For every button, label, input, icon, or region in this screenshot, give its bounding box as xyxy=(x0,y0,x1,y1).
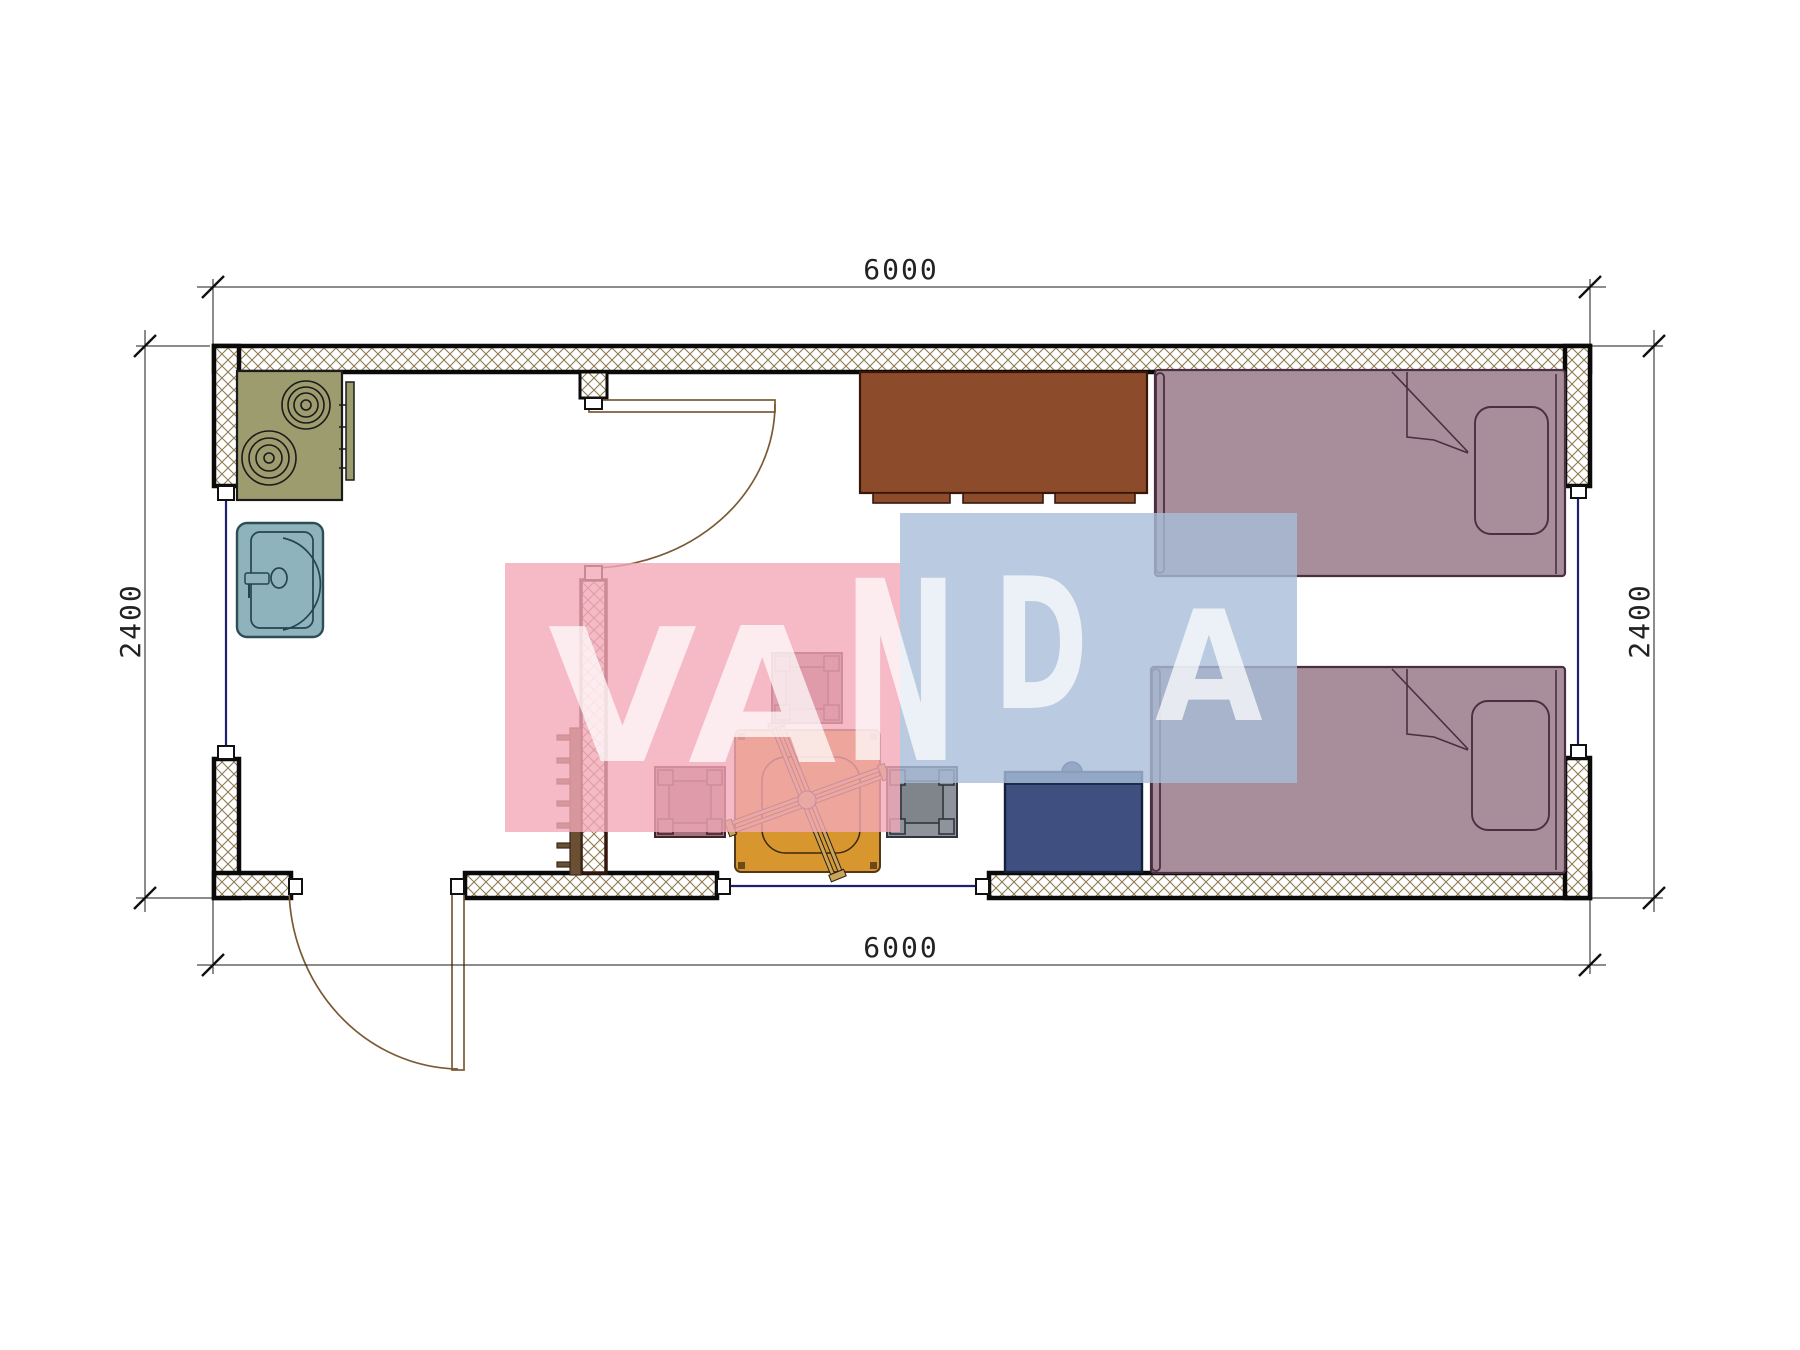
door-swing-entrance xyxy=(289,886,458,1069)
watermark-letter-a1: A xyxy=(688,588,836,807)
cabinet-group xyxy=(860,372,1147,503)
door-leaf-entrance xyxy=(452,884,464,1070)
cabinet-symbol xyxy=(860,372,1147,493)
kitchen-stove xyxy=(237,371,354,500)
wall-door-stub xyxy=(580,372,607,398)
kitchen-sink xyxy=(237,523,323,637)
wall-right-lower xyxy=(1565,758,1590,898)
wall-bottom-mid xyxy=(465,873,717,898)
floor-plan-drawing: 6000 6000 2400 2400 V A N D A xyxy=(0,0,1800,1350)
floor-plan-page: 6000 6000 2400 2400 V A N D A xyxy=(0,0,1800,1350)
watermark-letter-a2: A xyxy=(1155,579,1263,757)
cabinet-feet xyxy=(873,493,1135,503)
dim-label-right: 2400 xyxy=(1623,583,1656,658)
wall-right-upper xyxy=(1565,346,1590,486)
door-swing-interior xyxy=(590,404,775,568)
dim-label-left: 2400 xyxy=(114,583,147,658)
wall-left-upper xyxy=(214,346,239,486)
watermark-letter-n: N xyxy=(843,528,958,819)
watermark-letter-v: V xyxy=(548,589,697,805)
wall-bottom-left-arm xyxy=(214,873,291,898)
wall-bottom-right xyxy=(989,873,1590,898)
watermark-letter-d: D xyxy=(993,539,1088,751)
door-leaf-interior xyxy=(589,400,775,412)
stove-side-rail xyxy=(346,382,354,480)
armchair-symbol xyxy=(1005,772,1142,872)
faucet-symbol xyxy=(245,573,269,584)
dim-label-bottom: 6000 xyxy=(863,931,938,964)
wall-top xyxy=(214,346,1590,372)
dim-label-top: 6000 xyxy=(863,253,938,286)
